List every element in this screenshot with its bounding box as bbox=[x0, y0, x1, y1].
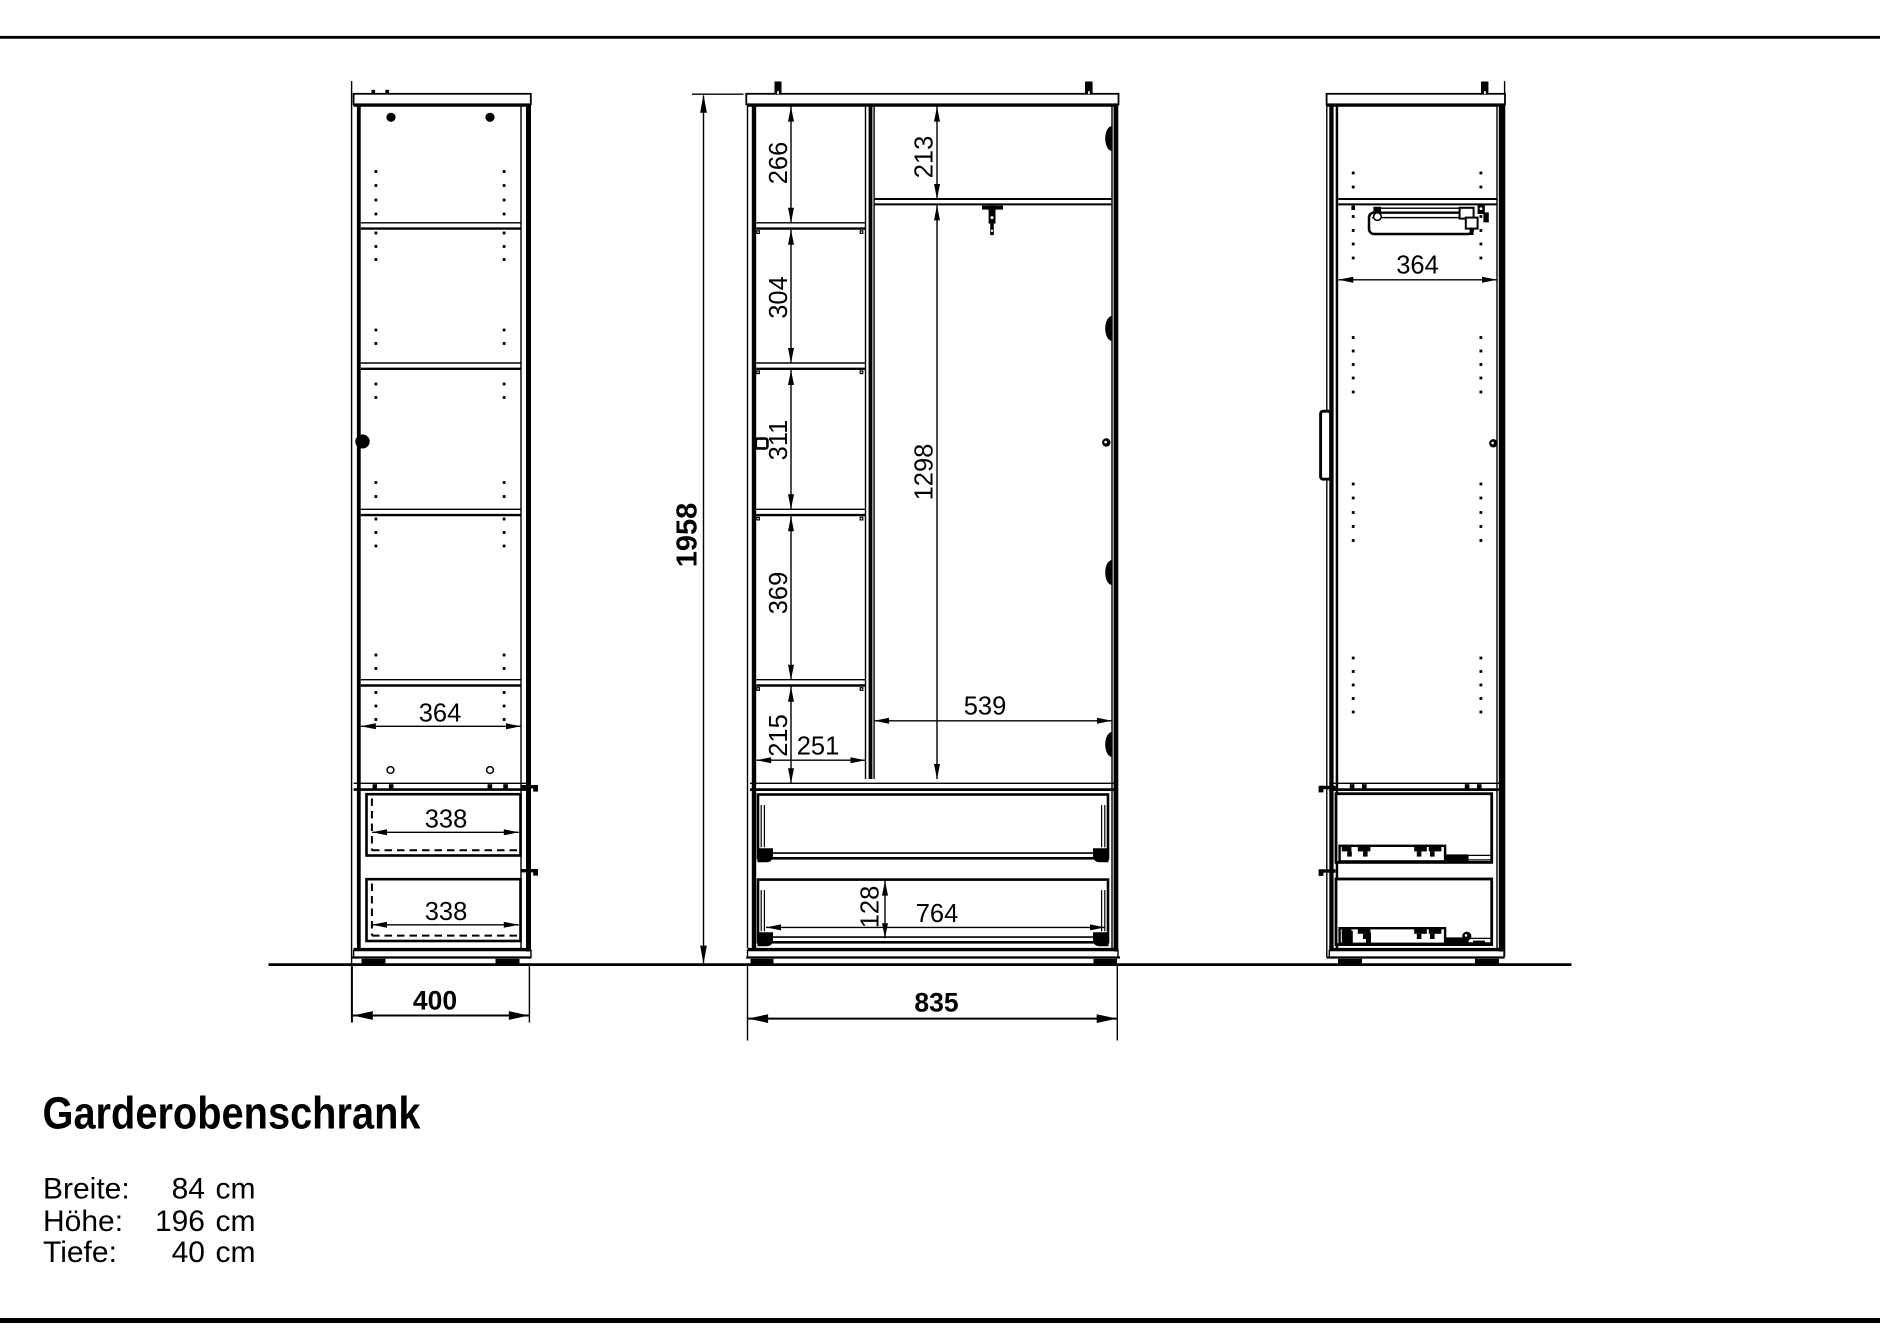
svg-text:128: 128 bbox=[857, 886, 885, 929]
svg-text:Höhe:: Höhe: bbox=[43, 1205, 123, 1238]
svg-text:251: 251 bbox=[797, 733, 840, 761]
svg-text:84: 84 bbox=[172, 1173, 205, 1206]
svg-text:369: 369 bbox=[765, 572, 793, 615]
svg-text:266: 266 bbox=[765, 142, 793, 185]
svg-text:364: 364 bbox=[1396, 252, 1439, 280]
svg-text:764: 764 bbox=[916, 900, 959, 928]
svg-text:835: 835 bbox=[914, 988, 958, 1018]
svg-text:Tiefe:: Tiefe: bbox=[43, 1236, 117, 1269]
svg-text:215: 215 bbox=[765, 714, 793, 757]
svg-text:cm: cm bbox=[216, 1173, 256, 1206]
svg-text:213: 213 bbox=[911, 136, 939, 179]
svg-text:1958: 1958 bbox=[672, 503, 704, 568]
svg-text:Breite:: Breite: bbox=[43, 1173, 130, 1206]
svg-text:304: 304 bbox=[765, 276, 793, 319]
svg-text:196: 196 bbox=[155, 1205, 205, 1238]
svg-text:311: 311 bbox=[765, 420, 793, 461]
svg-text:338: 338 bbox=[425, 806, 468, 834]
svg-text:364: 364 bbox=[419, 700, 462, 728]
svg-text:Garderobenschrank: Garderobenschrank bbox=[43, 1088, 422, 1139]
svg-text:1298: 1298 bbox=[911, 444, 939, 501]
svg-text:338: 338 bbox=[425, 898, 468, 926]
svg-text:40: 40 bbox=[172, 1236, 205, 1269]
svg-text:539: 539 bbox=[964, 693, 1007, 721]
svg-text:400: 400 bbox=[413, 986, 457, 1016]
svg-text:cm: cm bbox=[216, 1205, 256, 1238]
svg-text:cm: cm bbox=[216, 1236, 256, 1269]
